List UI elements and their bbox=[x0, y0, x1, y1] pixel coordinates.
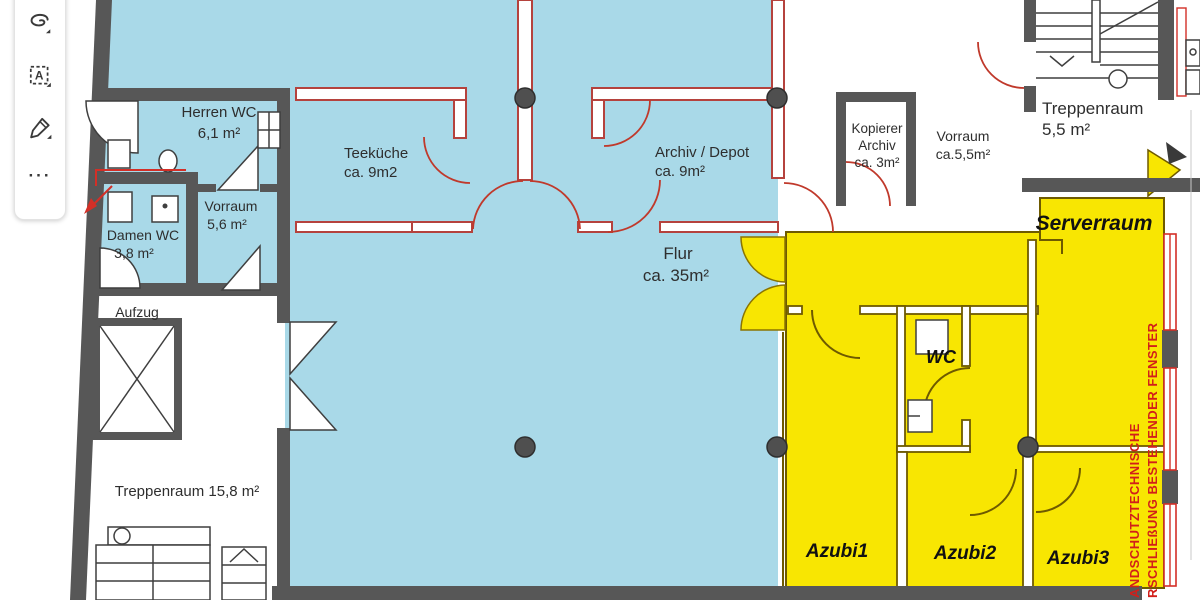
room-label-archiv: Archiv / Depot bbox=[655, 144, 750, 161]
room-area-damen-wc: 3,8 m² bbox=[114, 245, 154, 261]
room-label-vorraum-top: Vorraum bbox=[937, 128, 990, 144]
room-label-wc-yellow: WC bbox=[926, 347, 957, 367]
room-area-kopierer: ca. 3m² bbox=[854, 155, 900, 170]
stairs-bottom bbox=[96, 527, 266, 600]
ellipsis-icon: ··· bbox=[29, 171, 52, 189]
room-label-teekueche: Teeküche bbox=[344, 145, 408, 162]
room-label-kopierer: Kopierer bbox=[851, 121, 903, 136]
room-label-treppenraum-bottom: Treppenraum 15,8 m² bbox=[115, 483, 260, 500]
app-window: Herren WC 6,1 m² Damen WC 3,8 m² Vorraum… bbox=[0, 0, 1200, 600]
room-label-aufzug: Aufzug bbox=[115, 304, 159, 320]
room-label-treppenraum-top: Treppenraum bbox=[1042, 99, 1143, 118]
elevator bbox=[96, 322, 178, 436]
floorplan-canvas[interactable]: Herren WC 6,1 m² Damen WC 3,8 m² Vorraum… bbox=[0, 0, 1200, 600]
room-label-flur: Flur bbox=[663, 244, 693, 263]
room-label-azubi3: Azubi3 bbox=[1046, 548, 1110, 569]
freeform-select-button[interactable] bbox=[21, 5, 59, 43]
room-area-vorraum-wc: 5,6 m² bbox=[207, 216, 247, 232]
fire-note-line2: RSCHLIEßUNG BESTEHENDER FENSTER bbox=[1145, 322, 1160, 598]
room-label-vorraum-wc: Vorraum bbox=[205, 198, 258, 214]
room-area-treppenraum-top: 5,5 m² bbox=[1042, 120, 1091, 139]
room-label-serverraum: Serverraum bbox=[1036, 212, 1153, 235]
markup-toolbar: A ··· bbox=[14, 0, 66, 220]
room-label-kopierer2: Archiv bbox=[858, 138, 896, 153]
room-area-herren-wc: 6,1 m² bbox=[198, 125, 241, 142]
room-label-azubi2: Azubi2 bbox=[933, 543, 997, 564]
stairs-top bbox=[1036, 0, 1158, 88]
more-options-button[interactable]: ··· bbox=[21, 161, 59, 199]
room-label-damen-wc: Damen WC bbox=[107, 227, 179, 243]
fire-note-line1: ANDSCHUTZTECHNISCHE bbox=[1127, 423, 1142, 598]
text-select-icon: A bbox=[27, 63, 53, 89]
room-area-vorraum-top: ca.5,5m² bbox=[936, 146, 991, 162]
svg-text:A: A bbox=[35, 69, 44, 83]
room-label-azubi1: Azubi1 bbox=[805, 541, 868, 562]
room-area-teekueche: ca. 9m2 bbox=[344, 164, 397, 181]
room-area-flur: ca. 35m² bbox=[643, 266, 709, 285]
lasso-icon bbox=[27, 11, 53, 37]
room-area-archiv: ca. 9m² bbox=[655, 163, 705, 180]
text-select-button[interactable]: A bbox=[21, 57, 59, 95]
room-label-herren-wc: Herren WC bbox=[181, 104, 256, 121]
pen-button[interactable] bbox=[21, 109, 59, 147]
pen-icon bbox=[27, 115, 53, 141]
